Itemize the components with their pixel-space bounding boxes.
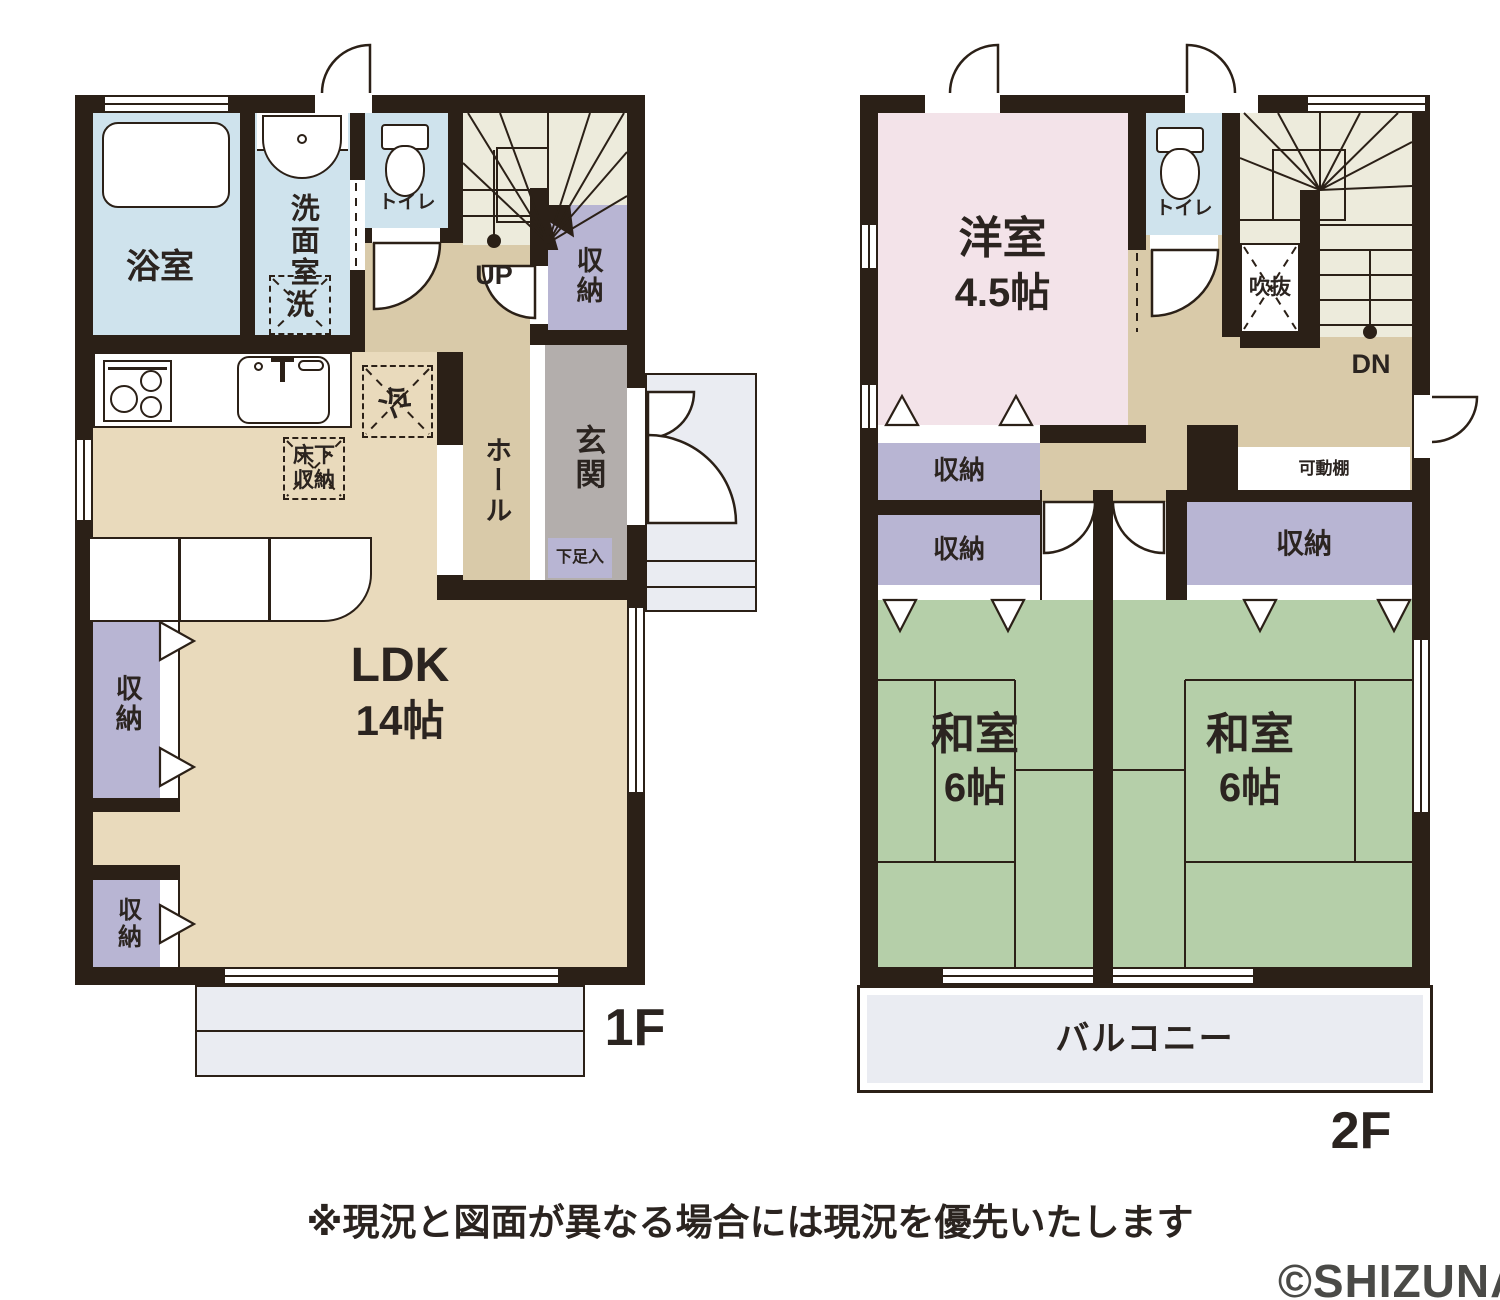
ldk-text: LDK xyxy=(351,639,450,693)
tatami-right-size-text: 6帖 xyxy=(1219,766,1281,811)
1f-storage-bottom-label: 収納 xyxy=(102,883,150,965)
2f-tatami-left-size-label: 6帖 xyxy=(895,764,1055,812)
tatami-left-text: 和室 xyxy=(931,710,1019,759)
2f-floor-label: 2F xyxy=(1318,1100,1404,1162)
1f-storage-mid-label: 収納 xyxy=(99,652,154,756)
western-size-text: 4.5帖 xyxy=(955,271,1051,316)
1f-washroom-label: 洗面室 xyxy=(272,158,332,323)
2f-text: 2F xyxy=(1331,1102,1392,1160)
2f-storage-c-label: 収納 xyxy=(1240,505,1368,582)
hall-text: ホール xyxy=(481,436,511,526)
washroom-text: 洗面室 xyxy=(286,193,318,289)
storage-mid-text: 収納 xyxy=(111,674,141,734)
tatami-right-text: 和室 xyxy=(1206,710,1294,759)
dn-text: DN xyxy=(1352,349,1391,379)
floor-plan-canvas: 冷 床下 収納 洗 下足入 可動棚 xyxy=(0,0,1500,1300)
1f-hall-label: ホール xyxy=(468,398,524,563)
storage-bottom-text: 収納 xyxy=(113,897,140,951)
stair-storage-text: 収納 xyxy=(572,246,602,306)
western-text: 洋室 xyxy=(959,214,1047,263)
2f-toilet-label: トイレ xyxy=(1148,196,1220,222)
2f-western-label: 洋室 xyxy=(920,212,1085,266)
plan-linework xyxy=(0,0,1500,1300)
1f-floor-label: 1F xyxy=(592,998,678,1058)
2f-dn-label: DN xyxy=(1338,345,1404,383)
toilet-text: トイレ xyxy=(378,192,435,213)
disclaimer-note: ※現況と図面が異なる場合には現況を優先いたします xyxy=(0,1192,1500,1246)
1f-text: 1F xyxy=(605,999,666,1057)
entrance-text: 玄関 xyxy=(570,424,605,492)
storage-a-text: 収納 xyxy=(933,456,985,485)
ldk-label: LDK xyxy=(320,638,480,694)
2f-tatami-right-size-label: 6帖 xyxy=(1170,764,1330,812)
2f-tatami-right-label: 和室 xyxy=(1170,708,1330,762)
tatami-left-size-text: 6帖 xyxy=(944,766,1006,811)
2f-toilet-text: トイレ xyxy=(1155,198,1212,219)
void-text: 吹抜 xyxy=(1249,276,1291,300)
2f-void-label: 吹抜 xyxy=(1241,273,1299,303)
dashed-x-marks xyxy=(273,183,1296,496)
copyright-text: ©SHIZUNAVI xyxy=(1278,1255,1500,1300)
storage-c-text: 収納 xyxy=(1276,528,1332,559)
ldk-size-label: 14帖 xyxy=(320,696,480,746)
1f-up-label: UP xyxy=(458,256,530,294)
2f-western-size-label: 4.5帖 xyxy=(920,268,1085,318)
disclaimer-text: ※現況と図面が異なる場合には現況を優先いたします xyxy=(307,1202,1194,1243)
2f-storage-a-label: 収納 xyxy=(895,444,1023,498)
1f-toilet-label: トイレ xyxy=(367,190,447,216)
2f-tatami-left-label: 和室 xyxy=(895,708,1055,762)
up-text: UP xyxy=(475,260,513,290)
copyright-watermark: ©SHIZUNAVI xyxy=(1278,1254,1500,1300)
ldk-size-text: 14帖 xyxy=(356,697,445,744)
2f-stairs-lines xyxy=(1240,113,1412,339)
2f-storage-b-label: 収納 xyxy=(895,518,1023,582)
1f-stair-storage-label: 収納 xyxy=(560,228,615,323)
bath-text: 浴室 xyxy=(126,248,194,286)
storage-b-text: 収納 xyxy=(933,535,985,564)
1f-bath-label: 浴室 xyxy=(110,245,210,289)
1f-entrance-label: 玄関 xyxy=(566,398,608,518)
